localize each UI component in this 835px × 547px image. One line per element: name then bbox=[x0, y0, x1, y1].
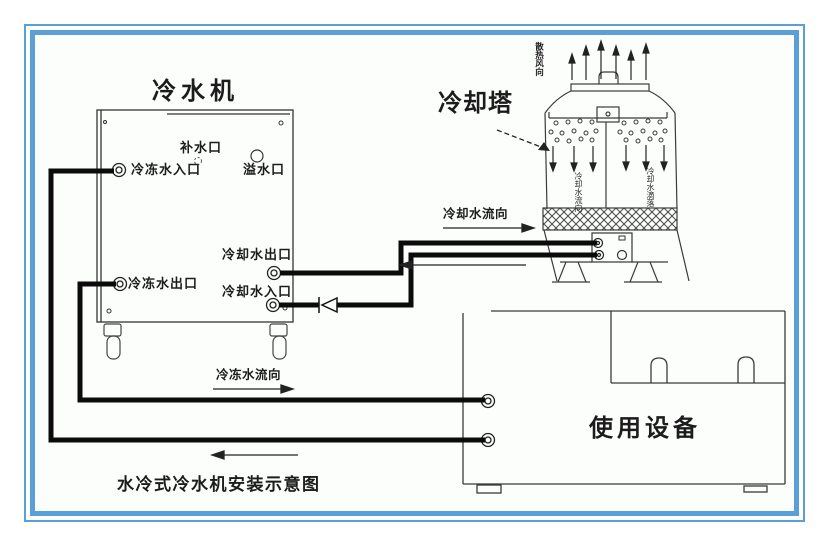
cooling-inlet-label: 冷却水入口 bbox=[222, 286, 292, 299]
check-valve-icon bbox=[319, 297, 337, 313]
chilled-flow-label: 冷冻水流向 bbox=[216, 369, 281, 382]
cooling-tower-outline bbox=[544, 72, 689, 282]
cooling-outlet-label: 冷却水出口 bbox=[222, 249, 292, 262]
cooling-flow-right-arrow bbox=[443, 224, 534, 232]
chilled-water-supply-pipe bbox=[80, 284, 485, 400]
tower-label-arrow bbox=[497, 130, 550, 151]
makeup-port-label: 补水口 bbox=[180, 142, 222, 155]
chilled-flow-right-arrow bbox=[213, 385, 293, 393]
overflow-port-label: 溢水口 bbox=[243, 164, 285, 177]
exhaust-air-arrows bbox=[569, 41, 649, 80]
overflow-port bbox=[251, 150, 263, 162]
exhaust-air-label: 散热风向 bbox=[534, 42, 543, 76]
diagram-linework bbox=[0, 0, 835, 547]
diagram-canvas: 冷水机 冷却塔 使用设备 水冷式冷水机安装示意图 补水口 冷冻水入口 溢水口 冷… bbox=[0, 0, 835, 547]
diagram-caption: 水冷式冷水机安装示意图 bbox=[117, 477, 321, 494]
tower-fill-layer bbox=[543, 208, 677, 230]
equipment-title: 使用设备 bbox=[589, 416, 701, 440]
tower-fall-right-label: 冷却水滴落 bbox=[646, 167, 654, 207]
cooling-water-return-pipe bbox=[337, 255, 597, 305]
cooling-flow-left-arrow bbox=[400, 261, 526, 269]
cooling-water-supply-pipe bbox=[280, 243, 597, 273]
chilled-flow-left-arrow bbox=[212, 451, 298, 459]
chiller-caster-left bbox=[104, 324, 121, 359]
cooling-water-outlet-port bbox=[268, 267, 281, 280]
cooling-flow-label: 冷却水流向 bbox=[443, 208, 508, 221]
chilled-outlet-label: 冷冻水出口 bbox=[128, 278, 198, 291]
tower-fall-left-label: 冷却水流向 bbox=[574, 172, 582, 212]
chiller-caster-right bbox=[270, 324, 287, 359]
cooling-tower-title: 冷却塔 bbox=[438, 91, 513, 115]
chilled-water-inlet-port bbox=[113, 164, 126, 177]
chiller-title: 冷水机 bbox=[152, 79, 239, 103]
chilled-inlet-label: 冷冻水入口 bbox=[131, 164, 201, 177]
cooling-water-inlet-port bbox=[267, 299, 280, 312]
equipment-outline bbox=[463, 311, 785, 493]
